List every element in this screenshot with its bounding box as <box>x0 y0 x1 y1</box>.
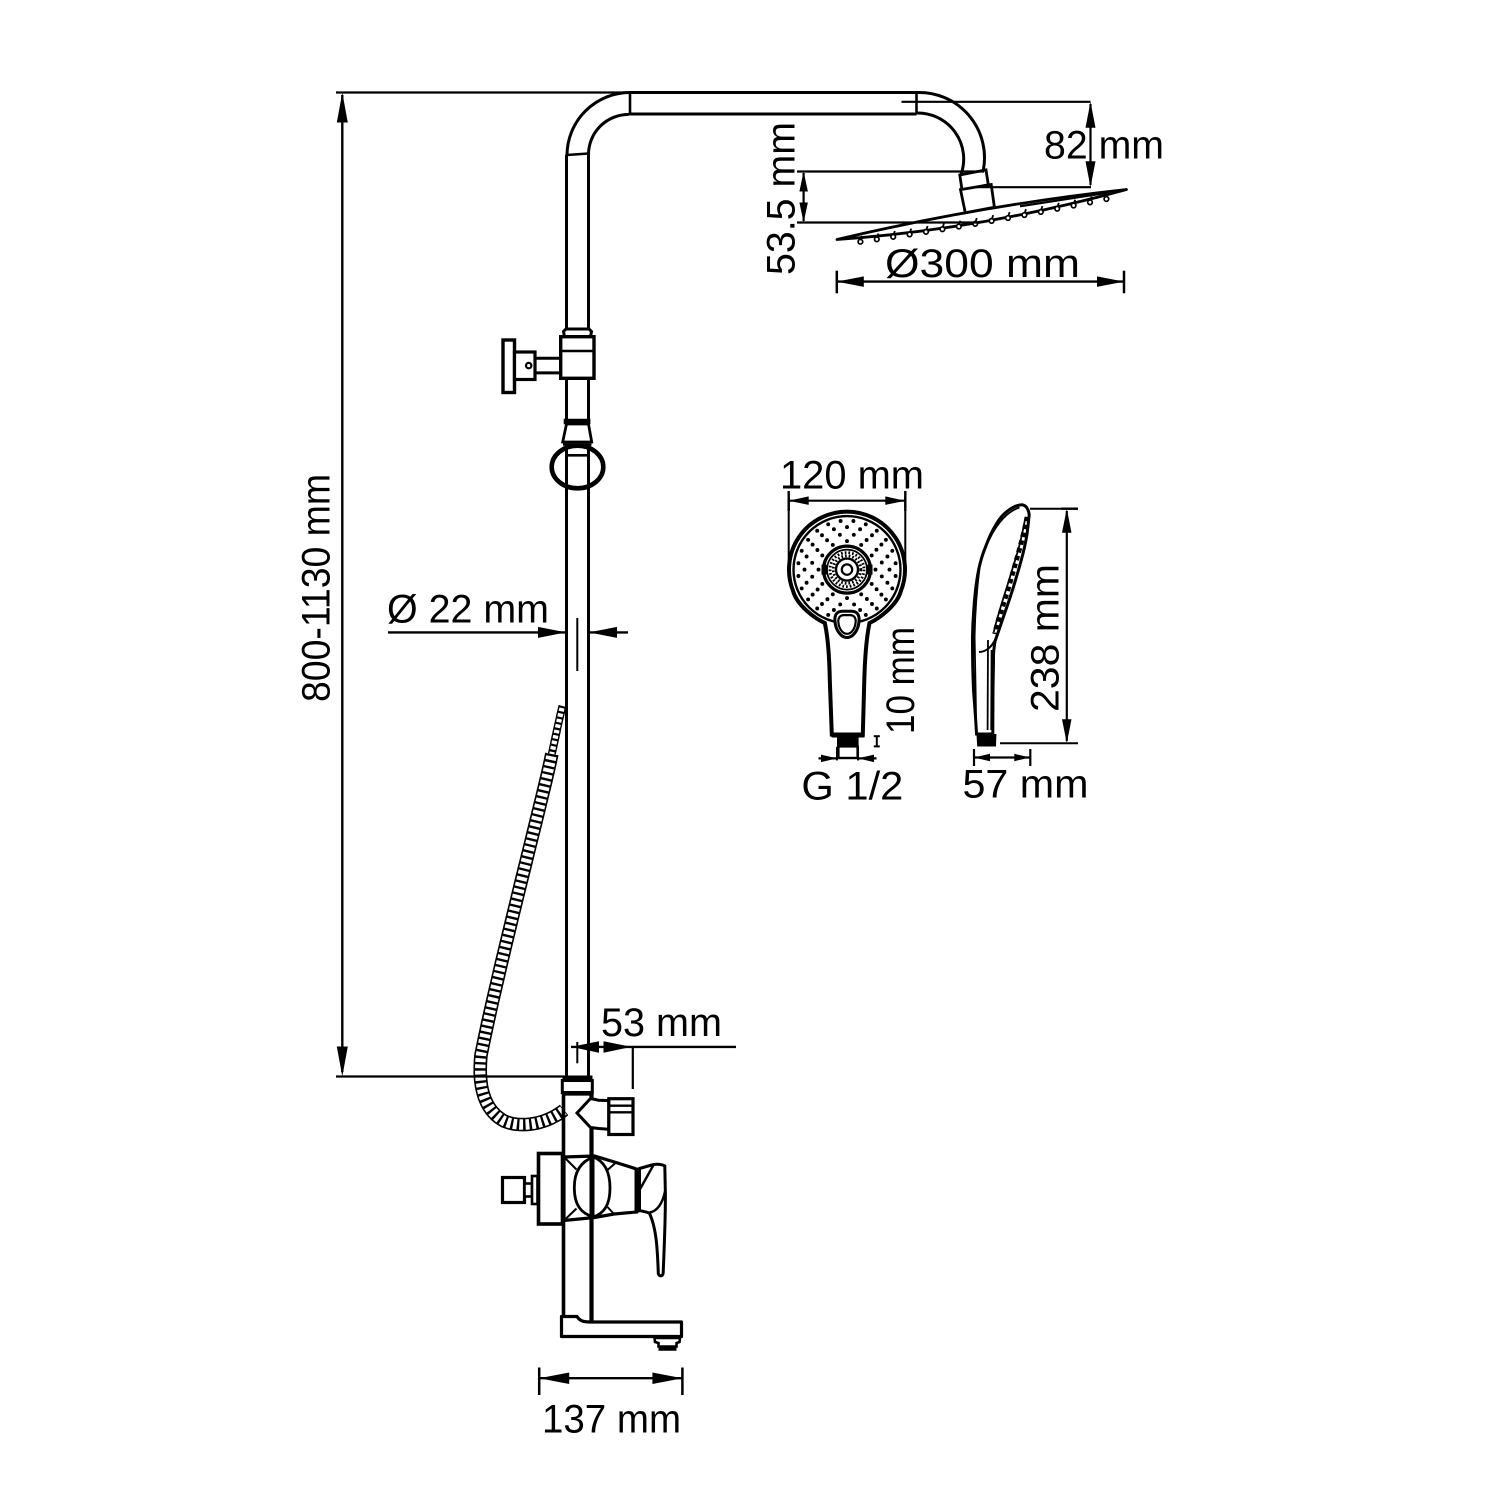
svg-text:120 mm: 120 mm <box>780 454 924 498</box>
svg-text:53 mm: 53 mm <box>601 1001 722 1045</box>
svg-text:238 mm: 238 mm <box>1024 564 1068 712</box>
svg-text:82 mm: 82 mm <box>1044 124 1164 168</box>
svg-text:Ø300 mm: Ø300 mm <box>885 242 1080 286</box>
svg-text:137 mm: 137 mm <box>542 1398 681 1442</box>
svg-text:Ø 22 mm: Ø 22 mm <box>387 588 549 632</box>
svg-text:53.5 mm: 53.5 mm <box>760 122 804 275</box>
svg-text:57 mm: 57 mm <box>963 762 1089 806</box>
svg-text:G 1/2: G 1/2 <box>801 765 903 809</box>
svg-text:800-1130 mm: 800-1130 mm <box>295 474 339 702</box>
svg-text:10 mm: 10 mm <box>879 627 923 734</box>
